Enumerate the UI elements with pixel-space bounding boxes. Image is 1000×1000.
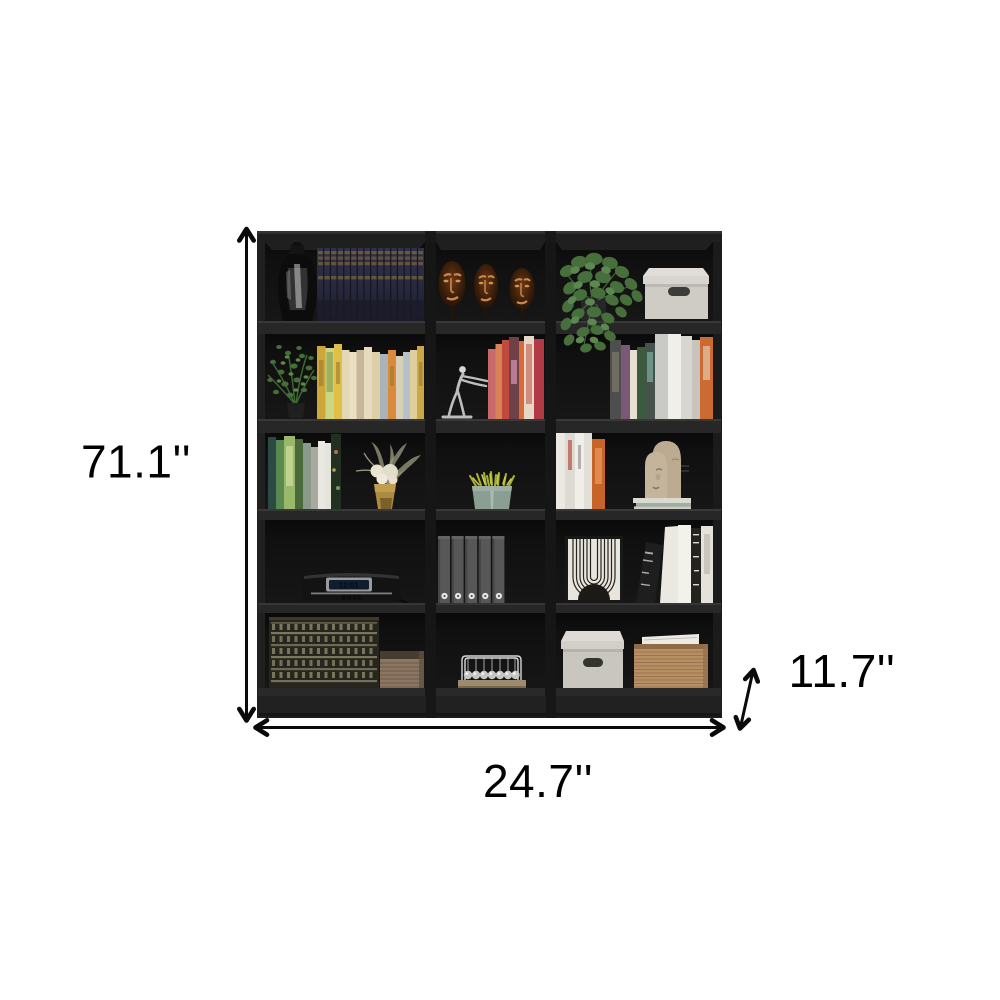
svg-text:24.7'': 24.7'' <box>483 755 593 807</box>
svg-text:71.1'': 71.1'' <box>81 436 191 488</box>
svg-text:11.7'': 11.7'' <box>789 645 896 697</box>
svg-text:BOSE: BOSE <box>342 596 363 602</box>
svg-text:12:01: 12:01 <box>339 583 359 590</box>
